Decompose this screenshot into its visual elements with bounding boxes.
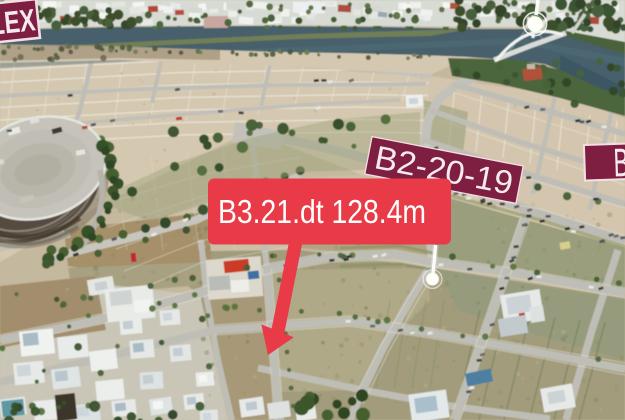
- svg-text:LEX: LEX: [0, 2, 37, 42]
- svg-text:B: B: [613, 139, 625, 185]
- svg-text:B3.21.dt 128.4m: B3.21.dt 128.4m: [218, 193, 426, 230]
